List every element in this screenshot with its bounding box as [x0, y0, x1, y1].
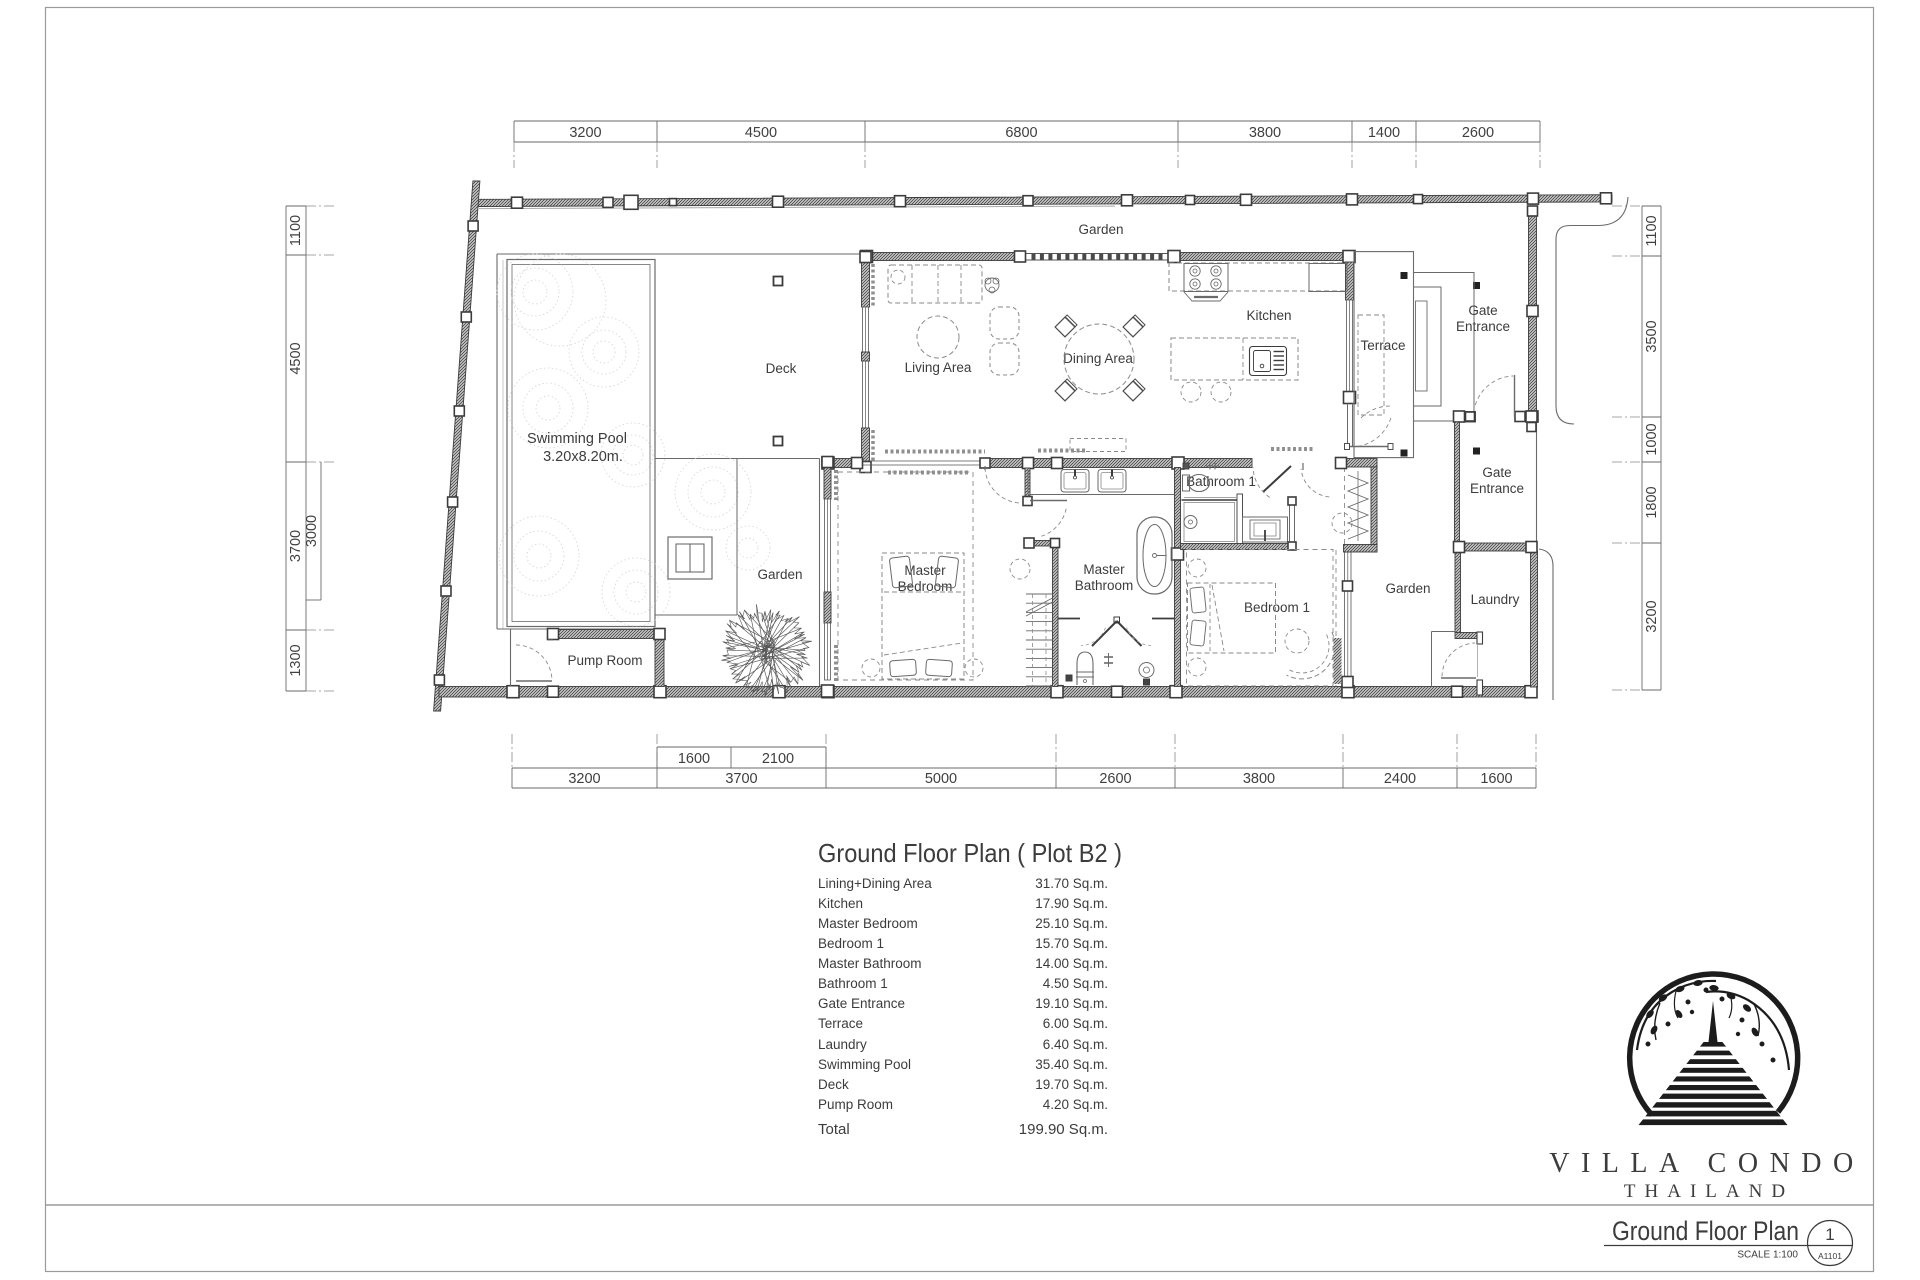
svg-text:Kitchen: Kitchen — [818, 896, 863, 911]
svg-text:19.10 Sq.m.: 19.10 Sq.m. — [1035, 996, 1108, 1011]
svg-text:1600: 1600 — [1480, 771, 1512, 787]
svg-text:3.20x8.20m.: 3.20x8.20m. — [543, 449, 623, 465]
svg-text:Bathroom: Bathroom — [1075, 578, 1134, 593]
svg-text:6.00 Sq.m.: 6.00 Sq.m. — [1043, 1016, 1108, 1031]
svg-text:5000: 5000 — [925, 771, 957, 787]
svg-text:Garden: Garden — [1385, 581, 1430, 596]
svg-text:Laundry: Laundry — [818, 1037, 867, 1052]
svg-text:4.20 Sq.m.: 4.20 Sq.m. — [1043, 1097, 1108, 1112]
svg-text:1100: 1100 — [1644, 215, 1660, 246]
svg-text:A1101: A1101 — [1818, 1251, 1842, 1261]
svg-text:3200: 3200 — [1644, 600, 1660, 632]
svg-text:Ground Floor Plan: Ground Floor Plan — [1612, 1216, 1799, 1246]
svg-text:4500: 4500 — [288, 342, 304, 374]
svg-text:Pump Room: Pump Room — [818, 1097, 893, 1112]
svg-text:Gate Entrance: Gate Entrance — [818, 996, 905, 1011]
svg-text:Laundry: Laundry — [1471, 592, 1520, 607]
svg-text:3200: 3200 — [568, 771, 600, 787]
svg-text:3800: 3800 — [1249, 125, 1281, 141]
svg-text:Bedroom 1: Bedroom 1 — [1244, 600, 1310, 615]
svg-text:1300: 1300 — [288, 644, 304, 676]
svg-text:VILLA CONDO: VILLA CONDO — [1549, 1148, 1865, 1179]
svg-text:Bedroom 1: Bedroom 1 — [818, 936, 884, 951]
svg-text:1600: 1600 — [678, 751, 710, 767]
svg-text:1: 1 — [1825, 1225, 1834, 1244]
svg-text:25.10 Sq.m.: 25.10 Sq.m. — [1035, 916, 1108, 931]
svg-text:2600: 2600 — [1099, 771, 1131, 787]
svg-text:Entrance: Entrance — [1456, 319, 1510, 334]
svg-text:199.90 Sq.m.: 199.90 Sq.m. — [1019, 1121, 1108, 1138]
svg-text:19.70 Sq.m.: 19.70 Sq.m. — [1035, 1077, 1108, 1092]
svg-text:Lining+Dining Area: Lining+Dining Area — [818, 876, 932, 891]
svg-text:Living Area: Living Area — [905, 360, 972, 375]
svg-text:Terrace: Terrace — [818, 1016, 863, 1031]
svg-text:1800: 1800 — [1644, 486, 1660, 518]
svg-text:4500: 4500 — [745, 125, 777, 141]
svg-text:Deck: Deck — [818, 1077, 849, 1092]
svg-text:15.70 Sq.m.: 15.70 Sq.m. — [1035, 936, 1108, 951]
svg-text:3700: 3700 — [725, 771, 757, 787]
svg-text:Entrance: Entrance — [1470, 481, 1524, 496]
svg-text:Master: Master — [1083, 562, 1125, 577]
svg-text:Kitchen: Kitchen — [1246, 308, 1291, 323]
svg-text:4.50 Sq.m.: 4.50 Sq.m. — [1043, 976, 1108, 991]
svg-text:35.40 Sq.m.: 35.40 Sq.m. — [1035, 1057, 1108, 1072]
svg-text:3000: 3000 — [304, 515, 320, 547]
svg-text:Garden: Garden — [1078, 222, 1123, 237]
svg-text:2100: 2100 — [762, 751, 794, 767]
svg-text:Dining Area: Dining Area — [1063, 351, 1133, 366]
svg-text:2400: 2400 — [1384, 771, 1416, 787]
svg-text:3200: 3200 — [569, 125, 601, 141]
svg-text:3500: 3500 — [1644, 320, 1660, 352]
svg-text:14.00 Sq.m.: 14.00 Sq.m. — [1035, 956, 1108, 971]
svg-text:17.90 Sq.m.: 17.90 Sq.m. — [1035, 896, 1108, 911]
svg-text:3700: 3700 — [288, 530, 304, 562]
svg-text:1400: 1400 — [1368, 125, 1400, 141]
svg-text:Gate: Gate — [1482, 465, 1511, 480]
svg-text:1100: 1100 — [288, 215, 304, 246]
svg-text:3800: 3800 — [1243, 771, 1275, 787]
svg-text:Bathroom 1: Bathroom 1 — [1186, 474, 1256, 489]
svg-text:Terrace: Terrace — [1360, 338, 1405, 353]
svg-text:Deck: Deck — [766, 361, 797, 376]
svg-text:1000: 1000 — [1644, 423, 1660, 455]
svg-text:Total: Total — [818, 1121, 850, 1138]
svg-text:2600: 2600 — [1462, 125, 1494, 141]
svg-text:THAILAND: THAILAND — [1624, 1181, 1794, 1202]
svg-text:Swimming Pool: Swimming Pool — [818, 1057, 911, 1072]
svg-text:Bathroom 1: Bathroom 1 — [818, 976, 888, 991]
svg-text:Master Bedroom: Master Bedroom — [818, 916, 918, 931]
svg-text:31.70 Sq.m.: 31.70 Sq.m. — [1035, 876, 1108, 891]
svg-text:6.40 Sq.m.: 6.40 Sq.m. — [1043, 1037, 1108, 1052]
svg-text:Ground Floor Plan ( Plot B2: Ground Floor Plan ( Plot B2 ) — [818, 838, 1122, 868]
svg-text:SCALE 1:100: SCALE 1:100 — [1737, 1250, 1798, 1261]
svg-text:Pump Room: Pump Room — [567, 653, 642, 668]
svg-text:Garden: Garden — [757, 567, 802, 582]
svg-text:Master Bathroom: Master Bathroom — [818, 956, 922, 971]
svg-text:Swimming Pool: Swimming Pool — [527, 431, 627, 447]
svg-text:6800: 6800 — [1005, 125, 1037, 141]
svg-text:Gate: Gate — [1468, 303, 1497, 318]
